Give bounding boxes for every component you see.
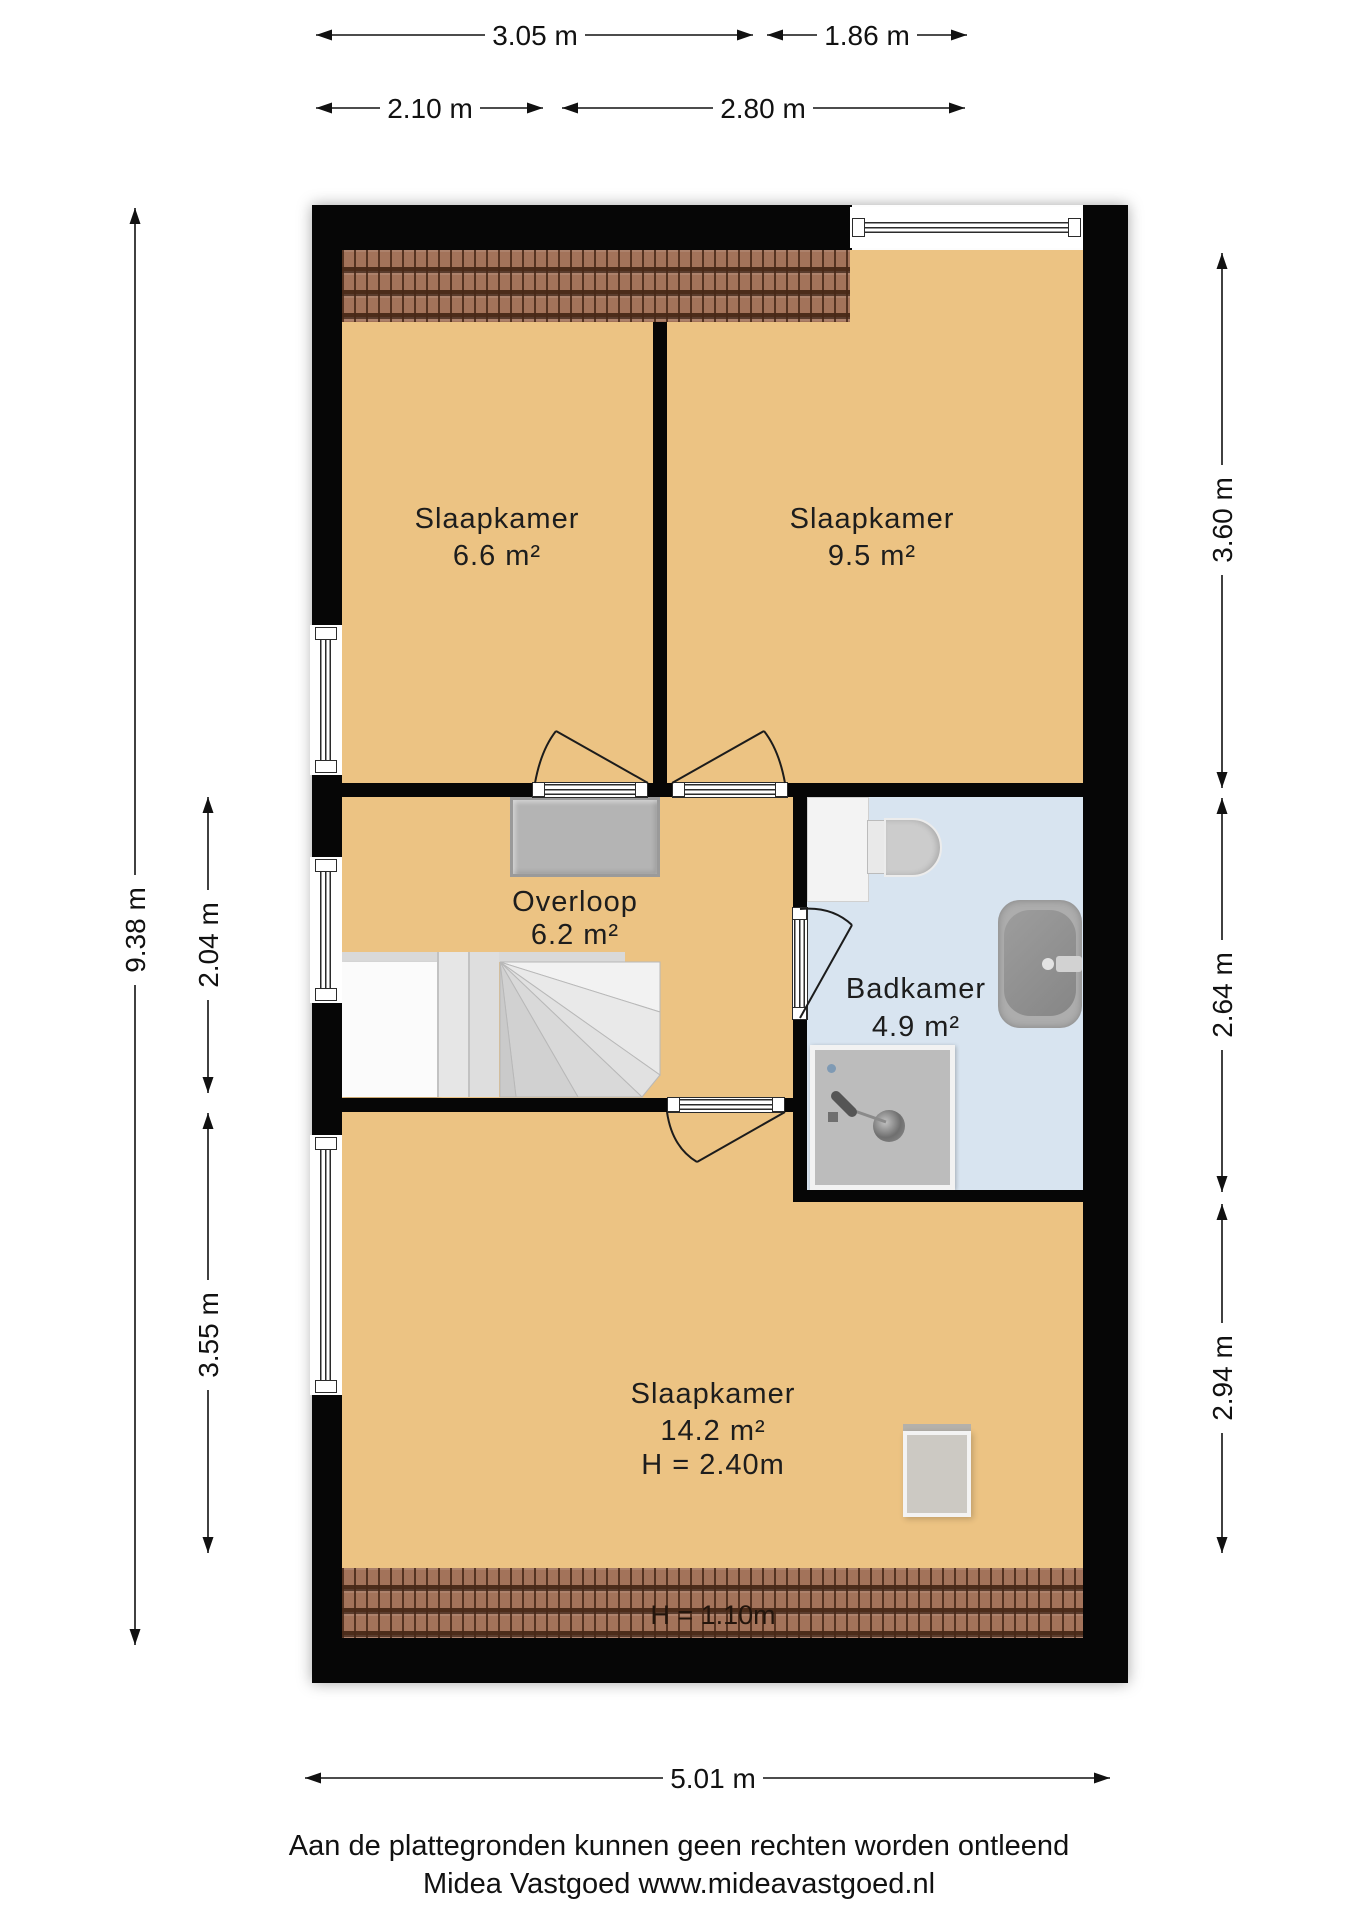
room-area-bedroom-top-right: 9.5 m²: [828, 540, 916, 573]
shower-handle-icon: [828, 1096, 886, 1122]
door-swing-bedroom-bottom: [667, 1112, 785, 1162]
annotations-svg: 3.05 m 1.86 m 2.10 m 2.80 m 5.01 m 9.38 …: [0, 0, 1358, 1920]
dim-width-bottom: 5.01 m: [670, 1763, 756, 1794]
dim-width-top-right: 1.86 m: [824, 20, 910, 51]
room-height-bedroom-bottom: H = 2.40m: [641, 1449, 785, 1482]
dim-height-landing: 2.04 m: [193, 902, 224, 988]
footer-company: Midea Vastgoed www.mideavastgoed.nl: [40, 1868, 1318, 1901]
dim-height-bottom-left: 3.55 m: [193, 1292, 224, 1378]
dimension-label-backs: [119, 19, 1238, 1794]
door-swing-bedroom-top-left: [535, 731, 648, 783]
dim-height-total: 9.38 m: [120, 887, 151, 973]
room-area-landing: 6.2 m²: [531, 919, 619, 952]
door-swing-bathroom: [800, 909, 852, 1018]
floorplan-page: 3.05 m 1.86 m 2.10 m 2.80 m 5.01 m 9.38 …: [0, 0, 1358, 1920]
room-area-bedroom-bottom: 14.2 m²: [660, 1415, 765, 1448]
dim-height-bottom-right: 2.94 m: [1207, 1335, 1238, 1421]
room-label-bedroom-top-left: Slaapkamer: [415, 503, 580, 536]
dimension-lines: [135, 35, 1222, 1778]
dim-height-bathroom: 2.64 m: [1207, 952, 1238, 1038]
room-area-bedroom-top-left: 6.6 m²: [453, 540, 541, 573]
dim-width-room-left: 2.10 m: [387, 93, 473, 124]
roof-edge-height-note: H = 1.10m: [650, 1600, 775, 1631]
room-label-bathroom: Badkamer: [846, 973, 986, 1006]
dimension-labels: 3.05 m 1.86 m 2.10 m 2.80 m 5.01 m 9.38 …: [120, 20, 1238, 1794]
room-label-landing: Overloop: [512, 886, 638, 919]
room-area-bathroom: 4.9 m²: [872, 1011, 960, 1044]
dim-height-bedroom-right: 3.60 m: [1207, 477, 1238, 563]
dim-width-room-right: 2.80 m: [720, 93, 806, 124]
stairs-winder-fan: [500, 962, 660, 1097]
dim-width-top-left: 3.05 m: [492, 20, 578, 51]
door-swing-bedroom-top-right: [672, 731, 785, 783]
room-label-bedroom-top-right: Slaapkamer: [790, 503, 955, 536]
room-label-bedroom-bottom: Slaapkamer: [631, 1378, 796, 1411]
dimension-arrowheads: [130, 30, 1228, 1784]
footer-disclaimer: Aan de plattegronden kunnen geen rechten…: [40, 1830, 1318, 1863]
